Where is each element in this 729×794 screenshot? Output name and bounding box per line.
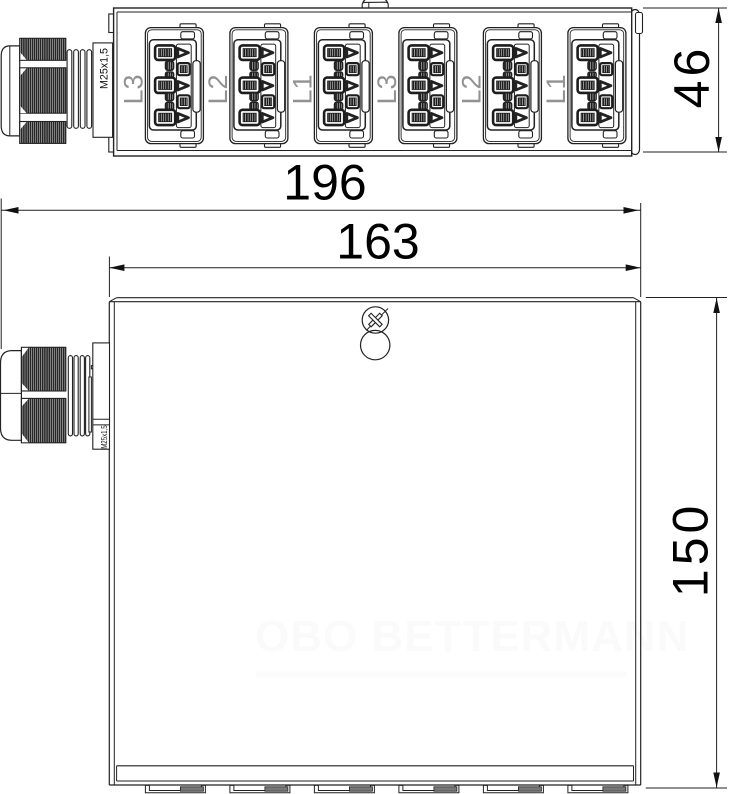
svg-text:L2: L2 xyxy=(203,74,233,104)
svg-text:163: 163 xyxy=(336,214,419,270)
svg-text:196: 196 xyxy=(283,155,366,211)
svg-text:L1: L1 xyxy=(541,74,571,104)
svg-text:L3: L3 xyxy=(118,74,148,104)
svg-text:L2: L2 xyxy=(456,74,486,104)
svg-text:46: 46 xyxy=(664,45,720,109)
svg-text:L1: L1 xyxy=(287,74,317,104)
svg-text:M25x1,5: M25x1,5 xyxy=(99,425,109,449)
svg-text:150: 150 xyxy=(663,502,719,597)
svg-text:L3: L3 xyxy=(372,74,402,104)
svg-text:M25x1,5: M25x1,5 xyxy=(98,48,110,89)
svg-text:OBO BETTERMANN: OBO BETTERMANN xyxy=(255,612,689,661)
